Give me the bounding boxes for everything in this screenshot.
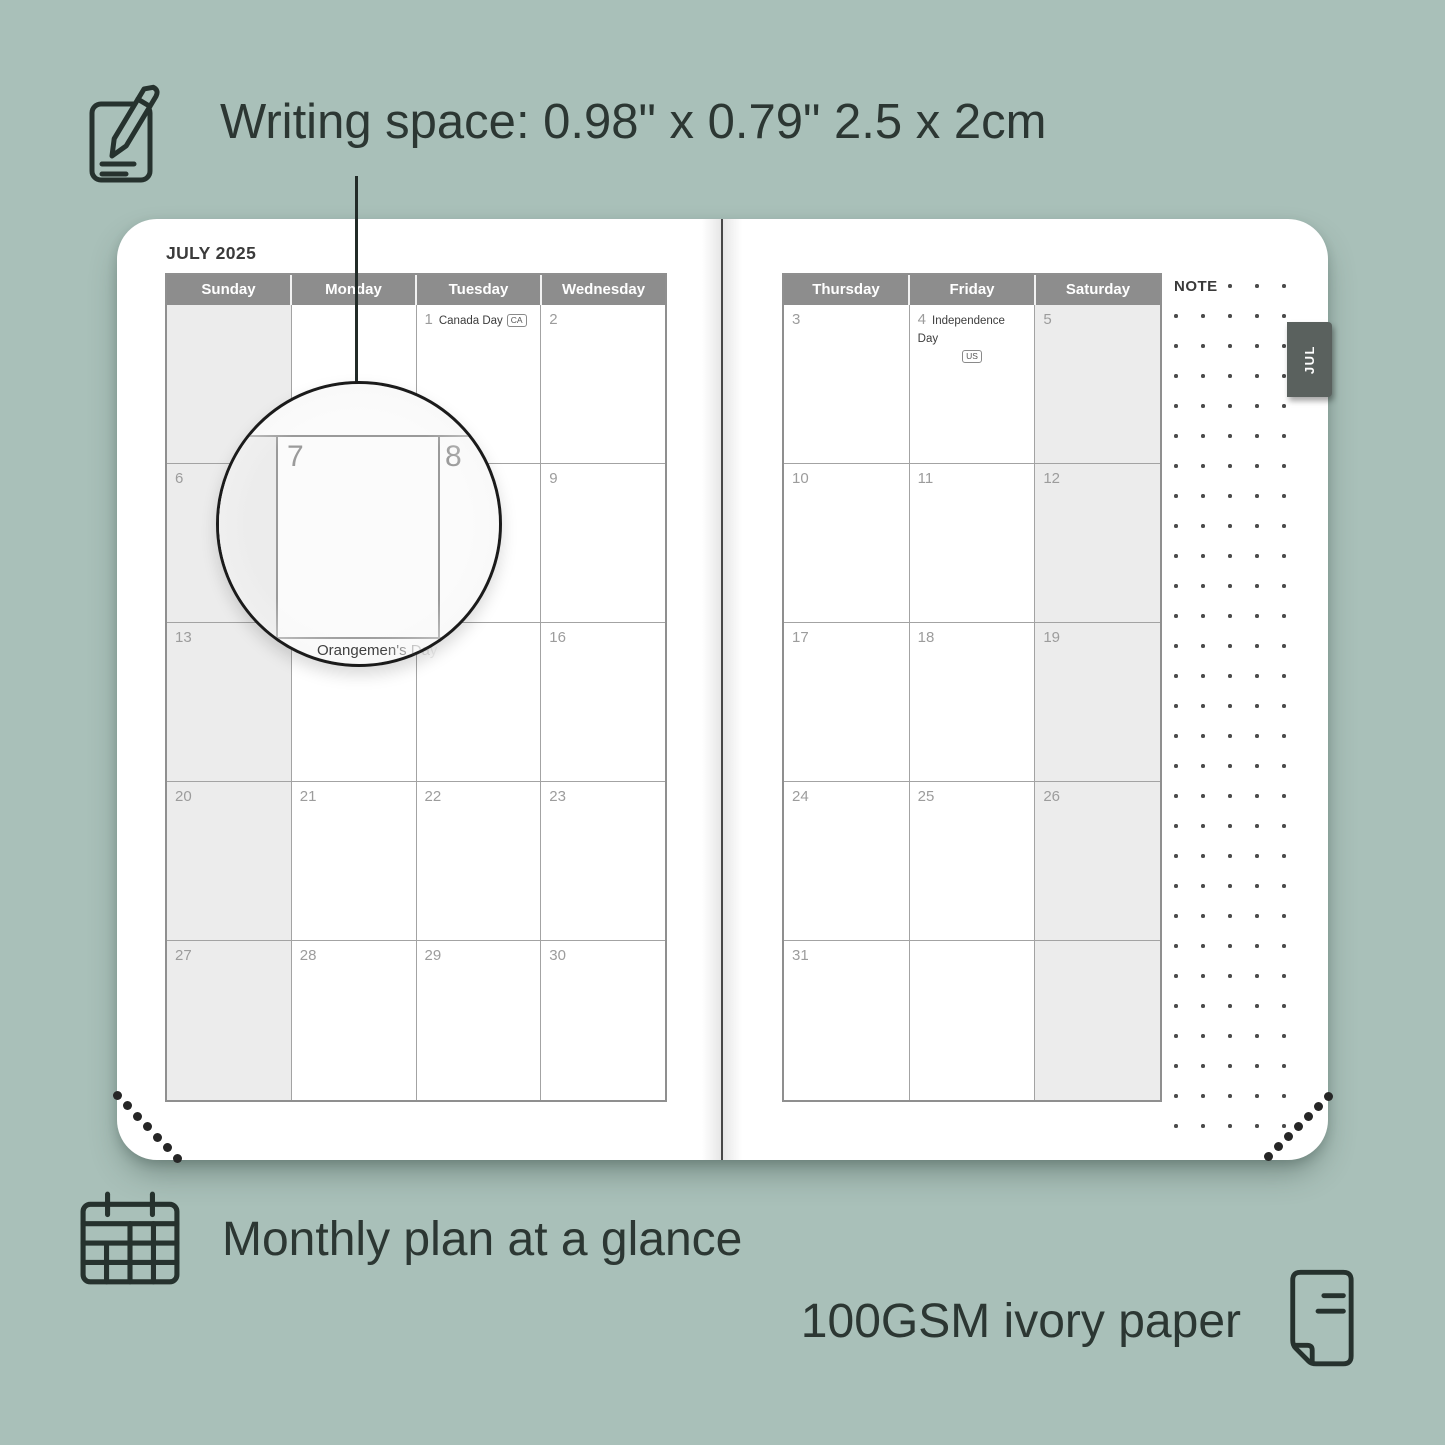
note-dot [1282, 734, 1286, 738]
note-dot [1174, 404, 1178, 408]
page-spine [721, 219, 723, 1160]
note-dot [1282, 494, 1286, 498]
day-header: Saturday [1036, 275, 1160, 305]
day-header: Friday [910, 275, 1036, 305]
month-title: JULY 2025 [166, 243, 256, 264]
note-dot [1201, 434, 1205, 438]
note-dot [1201, 494, 1205, 498]
calendar-cell: 17 [784, 623, 910, 782]
note-dot [1201, 374, 1205, 378]
holiday-label-orangemens: Orangemen's Day [317, 642, 437, 659]
calendar-cell: 11 [910, 464, 1036, 623]
note-dot [1255, 434, 1259, 438]
note-dot [1174, 1094, 1178, 1098]
note-dot [1174, 974, 1178, 978]
calendar-cell: 23 [541, 782, 665, 941]
month-tab-label: JUL [1302, 345, 1317, 374]
note-dot [1255, 734, 1259, 738]
note-dot [1228, 464, 1232, 468]
note-dot [1174, 824, 1178, 828]
note-dot [1255, 524, 1259, 528]
note-dot [1201, 1064, 1205, 1068]
note-dot [1174, 944, 1178, 948]
note-dot [1201, 764, 1205, 768]
magnifier-circle: 7 8 [216, 381, 502, 667]
note-dot [1201, 884, 1205, 888]
calendar-cell: 16 [541, 623, 665, 782]
note-dot [1228, 974, 1232, 978]
note-dot [1255, 644, 1259, 648]
note-dot [1255, 914, 1259, 918]
note-dot [1255, 614, 1259, 618]
perforation-dot [163, 1143, 172, 1152]
note-dot [1201, 974, 1205, 978]
note-dot [1282, 1124, 1286, 1128]
note-dot [1282, 374, 1286, 378]
calendar-cell: 25 [910, 782, 1036, 941]
note-dot [1282, 884, 1286, 888]
note-dot [1201, 614, 1205, 618]
day-number: 16 [549, 629, 566, 646]
note-dot [1282, 314, 1286, 318]
note-dot [1201, 674, 1205, 678]
note-dot [1174, 554, 1178, 558]
note-dot [1174, 1124, 1178, 1128]
perforation-dot [1304, 1112, 1313, 1121]
note-dot [1255, 374, 1259, 378]
day-number: 21 [300, 788, 317, 805]
day-header: Thursday [784, 275, 910, 305]
note-dot [1255, 824, 1259, 828]
calendar-cell: 22 [417, 782, 542, 941]
note-dot [1255, 884, 1259, 888]
note-dot [1228, 674, 1232, 678]
note-dot [1255, 1034, 1259, 1038]
note-dot [1282, 644, 1286, 648]
country-badge: CA [507, 314, 527, 327]
magnifier-fog [217, 382, 501, 666]
day-number: 23 [549, 788, 566, 805]
note-dot [1201, 464, 1205, 468]
note-dot [1174, 914, 1178, 918]
note-dot [1228, 1124, 1232, 1128]
perforation-dot [1274, 1142, 1283, 1151]
note-dot [1255, 854, 1259, 858]
calendar-cell: 30 [541, 941, 665, 1100]
day-number: 9 [549, 470, 557, 487]
note-dot [1255, 494, 1259, 498]
note-dot [1255, 464, 1259, 468]
note-dot [1228, 344, 1232, 348]
note-dot [1201, 734, 1205, 738]
note-dot [1201, 524, 1205, 528]
note-dot [1174, 344, 1178, 348]
calendar-cell [1035, 941, 1160, 1100]
note-dot [1174, 434, 1178, 438]
note-dot [1282, 584, 1286, 588]
note-dot [1201, 1004, 1205, 1008]
note-dot [1255, 794, 1259, 798]
calendar-cell: 29 [417, 941, 542, 1100]
note-dot [1255, 1004, 1259, 1008]
calendar-cell: 5 [1035, 305, 1160, 464]
note-dot [1201, 794, 1205, 798]
paper-sheet-icon [1283, 1266, 1357, 1372]
note-dot [1228, 734, 1232, 738]
pencil-note-icon [86, 80, 178, 184]
note-dot [1282, 764, 1286, 768]
note-dot [1201, 944, 1205, 948]
note-dot [1174, 854, 1178, 858]
note-dot [1255, 314, 1259, 318]
calendar-cell: 21 [292, 782, 417, 941]
note-dot [1201, 1034, 1205, 1038]
note-dot [1228, 614, 1232, 618]
perforation-dot [1314, 1102, 1323, 1111]
note-dot [1201, 704, 1205, 708]
note-dot [1282, 434, 1286, 438]
note-dot [1228, 554, 1232, 558]
note-dot [1228, 1034, 1232, 1038]
day-number: 10 [792, 470, 809, 487]
day-header: Tuesday [417, 275, 542, 305]
note-dot [1174, 764, 1178, 768]
calendar-cell: 13 [167, 623, 292, 782]
note-dot [1228, 704, 1232, 708]
note-dot [1282, 1034, 1286, 1038]
note-dot [1282, 944, 1286, 948]
calendar-cell: 12 [1035, 464, 1160, 623]
perforation-dot [1294, 1122, 1303, 1131]
note-dot [1228, 584, 1232, 588]
note-dot [1255, 584, 1259, 588]
note-dot [1255, 1064, 1259, 1068]
day-number: 1 [425, 311, 433, 328]
note-dot [1228, 284, 1232, 288]
note-dot [1282, 824, 1286, 828]
note-dot [1174, 794, 1178, 798]
note-dot [1282, 524, 1286, 528]
day-number: 25 [918, 788, 935, 805]
note-dot [1201, 1094, 1205, 1098]
perforation-dot [1324, 1092, 1333, 1101]
perforation-dot [133, 1112, 142, 1121]
calendar-cell: 2 [541, 305, 665, 464]
note-dot [1228, 794, 1232, 798]
note-dot [1174, 1064, 1178, 1068]
day-number: 22 [425, 788, 442, 805]
note-dot [1228, 434, 1232, 438]
note-dot [1201, 644, 1205, 648]
day-number: 19 [1043, 629, 1060, 646]
paper-spec-caption: 100GSM ivory paper [801, 1294, 1241, 1349]
country-badge: US [962, 350, 982, 363]
note-dot [1255, 1094, 1259, 1098]
perforation-dot [173, 1154, 182, 1163]
note-dot [1228, 764, 1232, 768]
note-dot [1282, 674, 1286, 678]
day-number: 24 [792, 788, 809, 805]
day-number: 4 [918, 311, 926, 328]
day-number: 31 [792, 947, 809, 964]
day-number: 11 [918, 470, 934, 487]
note-dot [1255, 554, 1259, 558]
callout-connector-line [355, 176, 358, 384]
holiday-label: Independence Day [918, 315, 1005, 345]
note-dot [1282, 554, 1286, 558]
note-dot [1282, 1094, 1286, 1098]
calendar-cell: 4Independence DayUS [910, 305, 1036, 464]
note-dot [1255, 764, 1259, 768]
calendar-cell: 24 [784, 782, 910, 941]
calendar-cell: 27 [167, 941, 292, 1100]
note-dot [1174, 1004, 1178, 1008]
note-dot [1282, 344, 1286, 348]
calendar-cell: 28 [292, 941, 417, 1100]
note-dot [1282, 1064, 1286, 1068]
note-dot [1282, 914, 1286, 918]
calendar-cell: 9 [541, 464, 665, 623]
note-dot [1201, 584, 1205, 588]
note-dot [1174, 314, 1178, 318]
note-dot [1201, 854, 1205, 858]
note-dot [1282, 974, 1286, 978]
perforation-dot [123, 1101, 132, 1110]
calendar-cell: 10 [784, 464, 910, 623]
note-dot [1201, 344, 1205, 348]
day-number: 13 [175, 629, 192, 646]
note-dot [1174, 1034, 1178, 1038]
note-dot [1255, 344, 1259, 348]
calendar-cell: 19 [1035, 623, 1160, 782]
note-dot [1228, 1004, 1232, 1008]
perforation-dot [1284, 1132, 1293, 1141]
calendar-cell: 18 [910, 623, 1036, 782]
calendar-cell: 31 [784, 941, 910, 1100]
note-dot [1174, 674, 1178, 678]
day-header: Sunday [167, 275, 292, 305]
perforation-dot [1264, 1152, 1273, 1161]
note-dot [1228, 404, 1232, 408]
note-dot [1174, 374, 1178, 378]
note-dot [1282, 794, 1286, 798]
day-number: 18 [918, 629, 935, 646]
day-number: 5 [1043, 311, 1051, 328]
note-dot [1282, 1004, 1286, 1008]
note-dot [1282, 404, 1286, 408]
calendar-cell: 20 [167, 782, 292, 941]
note-dot [1255, 404, 1259, 408]
note-dot [1174, 524, 1178, 528]
day-number: 12 [1043, 470, 1060, 487]
note-dot [1282, 284, 1286, 288]
day-number: 26 [1043, 788, 1060, 805]
note-dot [1255, 284, 1259, 288]
day-number: 27 [175, 947, 192, 964]
day-header: Wednesday [542, 275, 665, 305]
day-number: 28 [300, 947, 317, 964]
calendar-grid-right: ThursdayFridaySaturday34Independence Day… [782, 273, 1162, 1102]
day-number: 17 [792, 629, 809, 646]
note-dot [1228, 854, 1232, 858]
note-dot [1228, 524, 1232, 528]
holiday-label: Canada Day [439, 315, 503, 327]
day-number: 29 [425, 947, 442, 964]
note-dot [1174, 584, 1178, 588]
day-number: 2 [549, 311, 557, 328]
note-dot [1282, 464, 1286, 468]
note-dot [1228, 1094, 1232, 1098]
perforation-dot [113, 1091, 122, 1100]
writing-space-heading: Writing space: 0.98" x 0.79" 2.5 x 2cm [220, 94, 1046, 150]
calendar-cell: 26 [1035, 782, 1160, 941]
note-dot [1282, 614, 1286, 618]
note-dot [1255, 704, 1259, 708]
note-dot [1228, 884, 1232, 888]
note-dot [1174, 614, 1178, 618]
note-dot [1201, 554, 1205, 558]
note-dot [1228, 824, 1232, 828]
note-dot [1282, 704, 1286, 708]
day-number: 3 [792, 311, 800, 328]
note-dot [1174, 464, 1178, 468]
note-dot [1201, 404, 1205, 408]
note-dot [1255, 1124, 1259, 1128]
calendar-cell [910, 941, 1036, 1100]
note-dot [1228, 374, 1232, 378]
note-dot [1201, 1124, 1205, 1128]
day-number: 6 [175, 470, 183, 487]
planner-spread: JULY 2025 SundayMondayTuesdayWednesday1C… [117, 219, 1328, 1160]
note-label: NOTE [1174, 278, 1218, 295]
calendar-cell: 3 [784, 305, 910, 464]
note-dot [1228, 494, 1232, 498]
note-dot [1201, 824, 1205, 828]
day-number: 20 [175, 788, 192, 805]
perforation-dot [143, 1122, 152, 1131]
note-dot [1174, 734, 1178, 738]
note-dot [1255, 974, 1259, 978]
monthly-plan-caption: Monthly plan at a glance [222, 1212, 742, 1267]
note-dot [1228, 1064, 1232, 1068]
note-dot [1201, 914, 1205, 918]
day-number: 30 [549, 947, 566, 964]
note-dot [1282, 854, 1286, 858]
note-dot [1201, 314, 1205, 318]
note-dot [1174, 884, 1178, 888]
note-dot [1174, 704, 1178, 708]
note-dot [1255, 674, 1259, 678]
note-dot [1255, 944, 1259, 948]
note-dot [1174, 644, 1178, 648]
note-dot [1228, 914, 1232, 918]
month-tab-jul: JUL [1287, 322, 1332, 397]
note-dot [1174, 494, 1178, 498]
note-dot [1228, 314, 1232, 318]
note-dot [1228, 944, 1232, 948]
note-dot [1228, 644, 1232, 648]
calendar-icon [79, 1190, 181, 1286]
perforation-dot [153, 1133, 162, 1142]
